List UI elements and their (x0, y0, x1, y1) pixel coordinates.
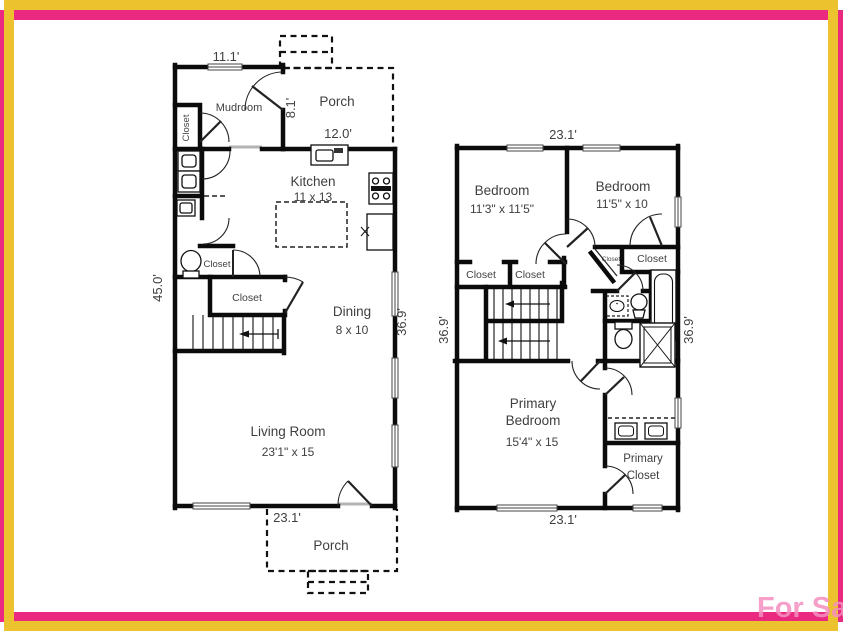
toilet-fixture (615, 322, 632, 349)
label-dim-right-floor1: 36.9' (394, 308, 409, 336)
label-mudroom-closet: Closet (181, 114, 192, 141)
label-stair-closet: Closet (232, 292, 262, 304)
window (392, 358, 398, 398)
hall-bath-sink-fixture (610, 301, 624, 312)
window (497, 505, 557, 511)
shower-fixture (640, 323, 675, 367)
label-kitchen: Kitchen (290, 174, 335, 189)
label-kitchen-size: 11 x 13 (294, 190, 333, 204)
border-yellow-frame (9, 5, 833, 626)
window (675, 398, 681, 428)
label-mudroom: Mudroom (216, 102, 262, 114)
utility-sink-fixture (177, 200, 195, 216)
label-bedroom2: Bedroom (596, 179, 651, 194)
page-border (5, 5, 838, 626)
kitchen-island (276, 202, 347, 247)
label-dim-bottom-floor1: 23.1' (273, 510, 301, 525)
label-porch-bottom: Porch (313, 538, 348, 553)
kitchen-sink-fixture (311, 145, 348, 165)
floor2-fixtures (610, 270, 676, 439)
label-living-size: 23'1" x 15 (262, 445, 315, 459)
label-dim-top-floor2: 23.1' (549, 127, 577, 142)
refrigerator-fixture (361, 214, 393, 250)
label-primary-closet-line2: Closet (627, 470, 660, 482)
label-bedroom2-size: 11'5" x 10 (596, 197, 648, 211)
floor1-plan: 11.1' Mudroom Closet Porch 8.1' 12.0' Ki… (150, 36, 409, 593)
label-primary-line1: Primary (510, 396, 557, 411)
washer-fixture (178, 151, 200, 171)
label-closet-tiny: Closet (602, 256, 621, 263)
label-dim-bottom-floor2: 23.1' (549, 512, 577, 527)
label-bedroom1-size: 11'3" x 11'5" (470, 202, 534, 216)
label-dining-size: 8 x 10 (336, 323, 369, 337)
label-dim-mudroom-width: 11.1' (213, 49, 240, 64)
label-dim-left-floor1: 45.0' (150, 274, 165, 302)
window (633, 505, 662, 511)
dryer-fixture (178, 171, 200, 192)
label-dining: Dining (333, 304, 371, 319)
window (507, 145, 543, 151)
label-primary-line2: Bedroom (506, 413, 561, 428)
primary-vanity-sink-right (645, 423, 667, 439)
label-primary-closet-line1: Primary (623, 453, 663, 465)
floor-plan-canvas: 11.1' Mudroom Closet Porch 8.1' 12.0' Ki… (0, 0, 843, 632)
toilet-fixture (181, 251, 201, 279)
label-porch-height: 8.1' (283, 98, 298, 119)
label-porch-width: 12.0' (324, 126, 352, 141)
label-dim-right-floor2: 36.9' (681, 316, 696, 344)
label-porch-top: Porch (319, 94, 354, 109)
window (392, 425, 398, 467)
floor2-plan: 23.1' Bedroom 11'3" x 11'5" Bedroom 11'5… (436, 127, 696, 527)
floor1-windows (193, 64, 398, 509)
floorplan-page: 11.1' Mudroom Closet Porch 8.1' 12.0' Ki… (0, 0, 843, 632)
label-bedroom1: Bedroom (475, 183, 530, 198)
window (208, 64, 242, 70)
label-living-room: Living Room (250, 424, 325, 439)
stove-fixture (369, 173, 393, 204)
border-pink-frame (5, 15, 838, 617)
primary-vanity-sink-left (615, 423, 637, 439)
floor1-stairs (193, 315, 278, 351)
pedestal-sink-fixture (631, 294, 647, 318)
floor1-walls (175, 65, 395, 508)
label-dim-left-floor2: 36.9' (436, 316, 451, 344)
window (193, 503, 250, 509)
window (675, 197, 681, 227)
label-closet-left-b: Closet (515, 269, 545, 281)
label-closet-bed2: Closet (637, 253, 667, 265)
stoop-bottom (308, 571, 368, 593)
floor2-stairs (494, 289, 557, 359)
label-closet-left-a: Closet (466, 269, 496, 281)
watermark-text: For Sa (757, 592, 843, 624)
label-hall-closet: Closet (204, 259, 231, 270)
label-primary-size: 15'4" x 15 (506, 435, 559, 449)
window (583, 145, 620, 151)
